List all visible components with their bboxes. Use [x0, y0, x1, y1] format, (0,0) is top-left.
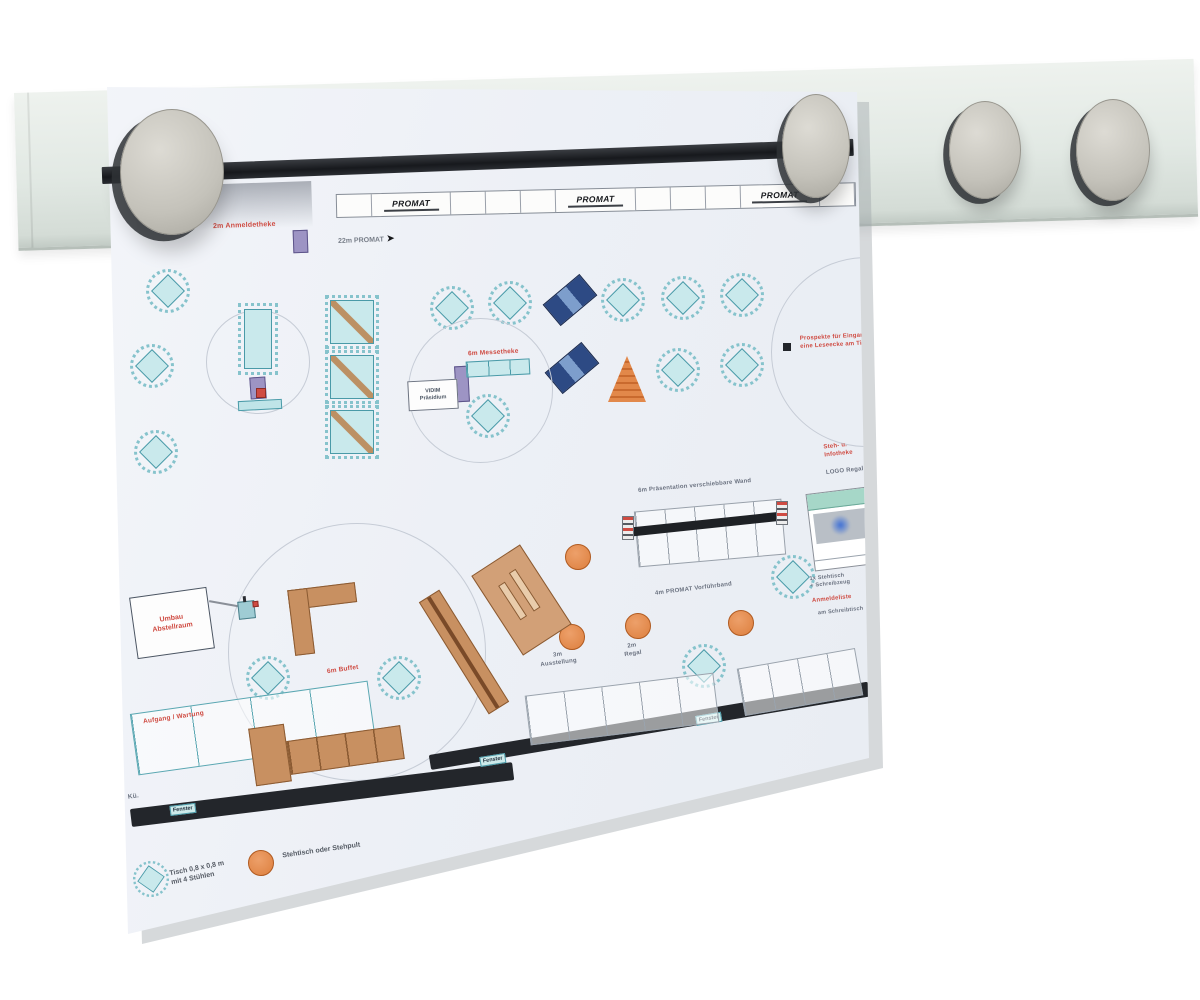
round-table [145, 268, 191, 314]
banner-dimension-note: 22m PROMAT➤ [338, 233, 395, 246]
promat-logo-underline [568, 204, 623, 207]
round-table [133, 429, 179, 475]
magnet-disc [949, 101, 1021, 199]
logo-display-header [807, 488, 869, 511]
arrow-right-icon: ➤ [387, 233, 395, 243]
banner-cell [486, 191, 522, 214]
promat-logo-text: PROMAT [761, 189, 799, 200]
promat-logo-cell: PROMAT [556, 188, 636, 212]
presentation-wall-endcap [622, 516, 634, 540]
entrance-marker [783, 343, 791, 351]
display-stand [543, 274, 598, 326]
conference-table [244, 309, 272, 369]
annotation: 3m Ausstellung [539, 650, 577, 670]
banner-cell [670, 187, 706, 210]
legend-table-label: Tisch 0,8 x 0,8 m mit 4 Stühlen [169, 859, 227, 888]
label-box: VIDIM Präsidium [407, 379, 459, 412]
buffet-bar [466, 358, 531, 377]
wall-gadget [237, 595, 257, 623]
promat-logo-cell: PROMAT [372, 192, 452, 216]
legend-standing-table-label: Stehtisch oder Stehpult [282, 842, 361, 860]
round-table [655, 347, 701, 393]
presentation-wall-endcap [776, 501, 788, 525]
annotation: Steh- u. Infotheke [823, 442, 853, 460]
standing-table [625, 613, 651, 639]
annotation: 1x Stehtisch + Schreibzeug [809, 572, 850, 590]
l-counter [287, 582, 363, 656]
banner-cell [337, 194, 373, 217]
legend-table-icon [129, 857, 173, 901]
rail-end-seam [27, 93, 33, 248]
wood-table [471, 544, 571, 655]
banner-cell [635, 187, 671, 210]
magnet-disc [1076, 99, 1150, 201]
annotation: 6m Präsentation verschiebbare Wand [638, 478, 752, 496]
legend-standing-table-icon [248, 850, 274, 876]
banner-cell [521, 190, 557, 213]
gadget-tick [243, 596, 247, 602]
round-table [660, 275, 706, 321]
buffet-table [325, 350, 379, 404]
promat-logo-underline [752, 200, 807, 203]
buffet-table [325, 295, 379, 349]
round-table [600, 277, 646, 323]
gadget-marker [252, 601, 259, 608]
magnet-disc [782, 94, 850, 198]
cabinet-block [293, 230, 309, 254]
banner-cell [451, 192, 487, 215]
annotation: am Schreibtisch [818, 606, 864, 618]
promat-logo-text: PROMAT [392, 197, 430, 208]
buffet-table [325, 405, 379, 459]
annotation: 2m Regal [623, 642, 642, 660]
round-table [719, 272, 765, 318]
display-stand [545, 342, 600, 394]
annotation: Kü. [127, 792, 139, 802]
annotation: 2m Anmeldetheke [213, 220, 276, 231]
round-table [719, 342, 765, 388]
round-table [129, 343, 175, 389]
banner-dimension-text: 22m PROMAT [338, 236, 384, 245]
standing-table [565, 544, 591, 570]
standing-table [728, 610, 754, 636]
annotation: LOGO Regal [826, 466, 864, 478]
magnet-disc [120, 109, 224, 235]
promat-logo-text: PROMAT [576, 193, 614, 204]
callout-box: Umbau Abstellraum [129, 587, 215, 659]
counter-outline [737, 648, 864, 716]
cone-display [608, 356, 646, 402]
promat-banner: PROMATPROMATPROMAT [336, 182, 856, 218]
promat-logo-underline [384, 208, 439, 211]
annotation: 4m PROMAT Vorführband [655, 581, 733, 598]
banner-cell [705, 186, 741, 209]
annotation: Anmeldeliste [812, 594, 852, 606]
scene: PROMATPROMATPROMAT 22m PROMAT➤ Tisch 0,8… [0, 0, 1200, 1000]
